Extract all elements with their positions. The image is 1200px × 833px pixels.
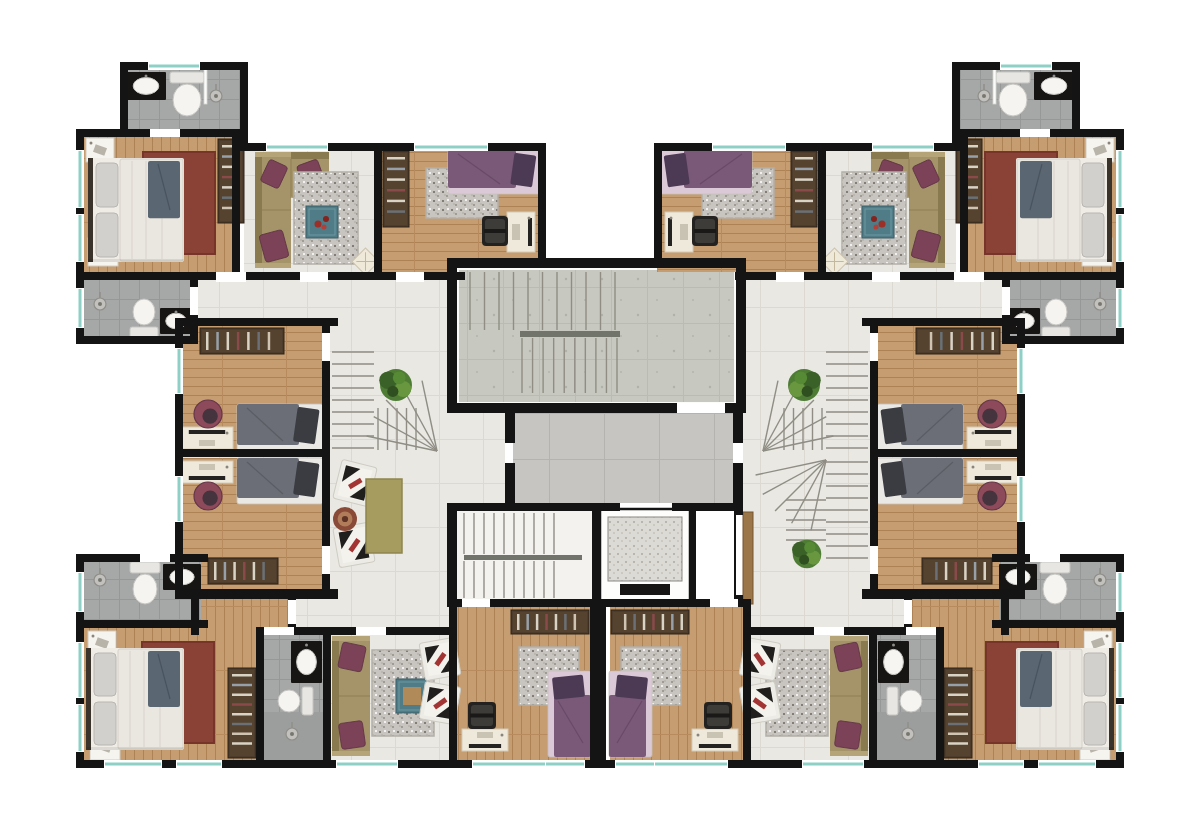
desk [512, 224, 520, 240]
wardrobe [671, 614, 674, 630]
sofa [332, 636, 370, 756]
wardrobe [237, 332, 240, 350]
bed-double [96, 163, 118, 207]
wall [735, 503, 743, 515]
wardrobe [536, 614, 539, 630]
shower [1098, 302, 1102, 306]
glass [204, 66, 207, 104]
door-opening [1030, 554, 1060, 562]
sofa [332, 636, 370, 641]
bed-double [1082, 213, 1104, 257]
wall [869, 627, 877, 762]
window [1017, 348, 1025, 394]
window [1119, 705, 1122, 751]
stairs-rail [520, 331, 620, 337]
desk [975, 430, 1011, 434]
window [1116, 214, 1124, 262]
window [148, 62, 200, 70]
bed-single-gray [293, 461, 320, 498]
window [615, 760, 655, 768]
window [178, 349, 181, 393]
table-red [306, 206, 338, 238]
rug-green [366, 479, 402, 553]
bed-double [88, 158, 184, 262]
door-opening [1020, 129, 1050, 137]
window [1020, 477, 1023, 521]
wall [256, 627, 264, 768]
plant [799, 555, 809, 565]
desk [670, 217, 673, 220]
table-red [874, 225, 879, 230]
door-opening [904, 600, 912, 624]
window [1000, 62, 1052, 70]
sink [126, 72, 166, 100]
window [105, 763, 161, 766]
floor-plan-canvas [0, 0, 1200, 833]
wardrobe [948, 694, 968, 697]
wall [733, 463, 743, 505]
wardrobe [233, 562, 236, 580]
chair-round [978, 482, 1006, 510]
wardrobe [517, 614, 520, 630]
wardrobe [232, 694, 252, 697]
window [1119, 289, 1122, 327]
desk [469, 744, 501, 748]
desk [975, 476, 1011, 480]
wardrobe [232, 674, 252, 677]
wardrobe [387, 210, 405, 213]
wardrobe [224, 562, 227, 580]
shower [214, 94, 218, 98]
chair-round [982, 490, 997, 505]
window [176, 760, 222, 768]
chair-round [202, 408, 217, 423]
plant [387, 386, 398, 397]
bed-single-purple [615, 675, 648, 700]
bed-double [1016, 259, 1112, 262]
wardrobe [795, 178, 813, 181]
bed-single-purple [448, 150, 540, 194]
sofa-l [871, 152, 909, 159]
wall [505, 413, 515, 443]
elevator-lobby [513, 411, 733, 503]
wardrobe [916, 328, 1000, 354]
wardrobe [200, 328, 284, 354]
wardrobe [232, 684, 252, 687]
bed-double [1016, 648, 1114, 750]
chair [706, 714, 730, 718]
desk [972, 432, 975, 435]
nightstand [90, 142, 93, 145]
window [76, 288, 84, 328]
bed-single-purple [510, 153, 536, 188]
door-opening [1002, 287, 1010, 315]
sink [133, 78, 159, 95]
wall [447, 258, 746, 268]
bed-single-gray [237, 458, 323, 504]
wardrobe [940, 332, 943, 350]
wardrobe [387, 189, 405, 192]
wardrobe [564, 614, 567, 630]
wardrobe [511, 610, 589, 634]
bed-double [1020, 651, 1052, 707]
wall [733, 413, 743, 443]
door-opening [710, 599, 738, 607]
sofa-l [291, 152, 329, 159]
window [415, 146, 487, 149]
window [1017, 476, 1025, 522]
duct [695, 509, 735, 603]
wall [538, 143, 546, 268]
toilet [996, 72, 1030, 116]
wardrobe [971, 332, 974, 350]
desk [680, 224, 688, 240]
window [267, 146, 327, 149]
window [336, 760, 398, 768]
wardrobe [974, 562, 977, 580]
door-opening [872, 272, 900, 282]
shower [906, 732, 910, 736]
elevator [600, 509, 690, 603]
wardrobe [795, 200, 813, 203]
wall [690, 509, 695, 601]
chair [482, 216, 508, 246]
bed-single-gray [877, 404, 963, 451]
desk [181, 461, 233, 483]
desk [462, 729, 508, 751]
desk [199, 464, 215, 470]
wardrobe [208, 558, 278, 584]
toilet [1045, 299, 1067, 325]
window [76, 150, 84, 208]
window [1116, 704, 1124, 752]
window [1119, 151, 1122, 207]
wardrobe [253, 562, 256, 580]
wardrobe [611, 610, 689, 634]
wardrobe [961, 332, 964, 350]
window [414, 143, 488, 151]
sofa [830, 636, 868, 641]
chair [468, 702, 496, 729]
desk [668, 218, 672, 246]
window [175, 476, 183, 522]
wardrobe [652, 614, 655, 630]
table-red [871, 216, 877, 222]
stairs-rail [464, 555, 582, 560]
table-red [323, 216, 329, 222]
bed-double [1016, 158, 1112, 262]
door-opening [300, 272, 328, 282]
sink [1034, 72, 1074, 100]
wall [870, 449, 1025, 457]
window [712, 143, 786, 151]
sink [878, 641, 909, 683]
wardrobe [387, 178, 405, 181]
bed-single-purple [552, 675, 585, 700]
bed-double [88, 158, 93, 262]
desk [967, 461, 1019, 483]
sofa-l [255, 152, 262, 268]
toilet [170, 72, 204, 116]
wall [175, 589, 338, 599]
wardrobe [232, 733, 252, 736]
door-opening [216, 272, 246, 282]
window [872, 143, 934, 151]
desk [967, 427, 1019, 449]
bed-double [1016, 747, 1114, 750]
door-opening [268, 627, 294, 635]
sink [1023, 311, 1026, 314]
sofa [332, 751, 370, 756]
glass [993, 66, 996, 104]
window [76, 642, 84, 698]
sofa [338, 642, 367, 672]
window [979, 763, 1023, 766]
wardrobe [795, 168, 813, 171]
bed-double [1084, 702, 1106, 745]
wall [952, 62, 960, 151]
door-opening [190, 287, 198, 315]
wall [76, 620, 208, 628]
wardrobe [984, 562, 987, 580]
door-opening [462, 599, 490, 607]
window [337, 763, 397, 766]
wardrobe [624, 614, 627, 630]
window [1116, 642, 1124, 698]
bed-double [94, 702, 116, 745]
desk [972, 466, 975, 469]
wardrobe [227, 332, 230, 350]
door-opening [140, 554, 170, 562]
shower [982, 94, 986, 98]
wardrobe [214, 562, 217, 580]
wardrobe [948, 684, 968, 687]
sofa [332, 636, 339, 756]
bed-single-purple [448, 150, 516, 188]
wall [323, 627, 331, 762]
wardrobe [981, 332, 984, 350]
desk [501, 734, 504, 737]
window [79, 215, 82, 261]
wardrobe [387, 200, 405, 203]
bed-single-purple [660, 150, 752, 194]
toilet [1043, 574, 1067, 604]
desk [692, 729, 738, 751]
wardrobe [555, 614, 558, 630]
desk [699, 744, 731, 748]
window [1119, 643, 1122, 697]
wardrobe [948, 723, 968, 726]
wardrobe [992, 332, 995, 350]
door-opening [870, 333, 878, 361]
wardrobe [387, 168, 405, 171]
shower [98, 302, 102, 306]
wall [447, 258, 457, 413]
window [873, 146, 933, 149]
wardrobe [387, 157, 405, 160]
bed-single-purple [548, 671, 591, 757]
bed-single-purple [684, 150, 752, 188]
window [1039, 763, 1095, 766]
door-opening [776, 272, 804, 282]
bed-double [96, 213, 118, 257]
wall [672, 503, 735, 511]
wardrobe [681, 614, 684, 630]
wardrobe [232, 742, 252, 745]
bed-single-gray [901, 458, 963, 498]
window [616, 763, 654, 766]
table-red [306, 206, 338, 238]
wardrobe [948, 713, 968, 716]
shower [1098, 578, 1102, 582]
plant [393, 371, 406, 384]
bed-double [86, 747, 184, 750]
bed-single-gray [237, 404, 299, 445]
sofa-l [909, 152, 945, 157]
toilet [278, 690, 300, 712]
window [79, 705, 82, 751]
desk [665, 212, 693, 252]
wardrobe [232, 703, 252, 706]
window [76, 704, 84, 752]
toilet [996, 72, 1030, 83]
desk [477, 732, 493, 738]
wardrobe [944, 668, 972, 758]
sofa-l [255, 152, 291, 157]
wardrobe [228, 668, 256, 758]
entry-nook [199, 597, 288, 627]
sofa [834, 642, 863, 672]
wall [590, 599, 606, 768]
stairs-rail [520, 331, 620, 337]
wall [505, 463, 515, 505]
bed-double [86, 648, 91, 750]
door-opening [870, 546, 878, 574]
rug-green [366, 479, 402, 553]
sofa [830, 751, 868, 756]
window [1001, 65, 1051, 68]
desk [226, 432, 229, 435]
wardrobe [383, 151, 409, 227]
window [1116, 288, 1124, 328]
chair [484, 229, 506, 233]
wall [725, 403, 746, 413]
wall [175, 449, 330, 457]
door-opening [288, 600, 296, 624]
window [175, 348, 183, 394]
window [1020, 349, 1023, 393]
nightstand [1106, 635, 1109, 638]
elevator [620, 584, 670, 595]
window [79, 573, 82, 611]
wardrobe [922, 558, 992, 584]
door-opening [322, 333, 330, 361]
toilet [170, 72, 204, 83]
desk [181, 427, 233, 449]
bed-double [148, 161, 180, 218]
toilet [999, 84, 1027, 116]
toilet [133, 299, 155, 325]
window [178, 477, 181, 521]
wall [592, 503, 600, 607]
desk [199, 440, 215, 446]
desk [528, 217, 531, 220]
chair-round [978, 400, 1006, 428]
wall [960, 133, 968, 277]
table-red [315, 221, 322, 228]
plant [794, 371, 807, 384]
bed-double [1107, 158, 1112, 262]
glass [993, 66, 996, 104]
sofa-l [909, 263, 945, 268]
chair [694, 229, 716, 233]
wall [936, 627, 944, 768]
wardrobe [545, 614, 548, 630]
chair-round [982, 408, 997, 423]
wardrobe [945, 562, 948, 580]
sink [297, 649, 317, 674]
plant [802, 386, 813, 397]
desk [528, 218, 532, 246]
window [546, 763, 584, 766]
bed-double [148, 651, 180, 707]
sofa [830, 636, 868, 756]
bed-double [1082, 163, 1104, 207]
wardrobe [791, 151, 817, 227]
round-rug [333, 507, 357, 531]
wall [232, 133, 240, 277]
wall [240, 62, 248, 151]
wardrobe [930, 332, 933, 350]
wall [447, 503, 457, 607]
window [104, 760, 162, 768]
sink [892, 644, 895, 647]
chair-round [202, 490, 217, 505]
wardrobe [948, 674, 968, 677]
wardrobe [935, 562, 938, 580]
bed-single-gray [877, 458, 963, 504]
wardrobe [795, 157, 813, 160]
bed-double [1084, 653, 1106, 696]
glass [204, 66, 207, 104]
toilet [302, 687, 313, 715]
wardrobe [795, 210, 813, 213]
wall [862, 318, 1025, 326]
sofa-l [255, 263, 291, 268]
wall [818, 149, 826, 280]
entry-nook [912, 597, 1001, 627]
desk [707, 732, 723, 738]
window [79, 289, 82, 327]
wardrobe [247, 332, 250, 350]
wood-strip [743, 512, 753, 604]
bed-double [1020, 161, 1052, 218]
window [655, 763, 727, 766]
wardrobe [232, 713, 252, 716]
sink [305, 644, 308, 647]
wall [862, 589, 1025, 599]
door-opening [356, 627, 386, 635]
window [177, 763, 221, 766]
wall [1001, 597, 1009, 635]
sink [145, 75, 148, 78]
chair [692, 216, 718, 246]
door-opening [396, 272, 424, 282]
desk [985, 464, 1001, 470]
wardrobe [964, 562, 967, 580]
wardrobe [243, 562, 246, 580]
desk [226, 466, 229, 469]
